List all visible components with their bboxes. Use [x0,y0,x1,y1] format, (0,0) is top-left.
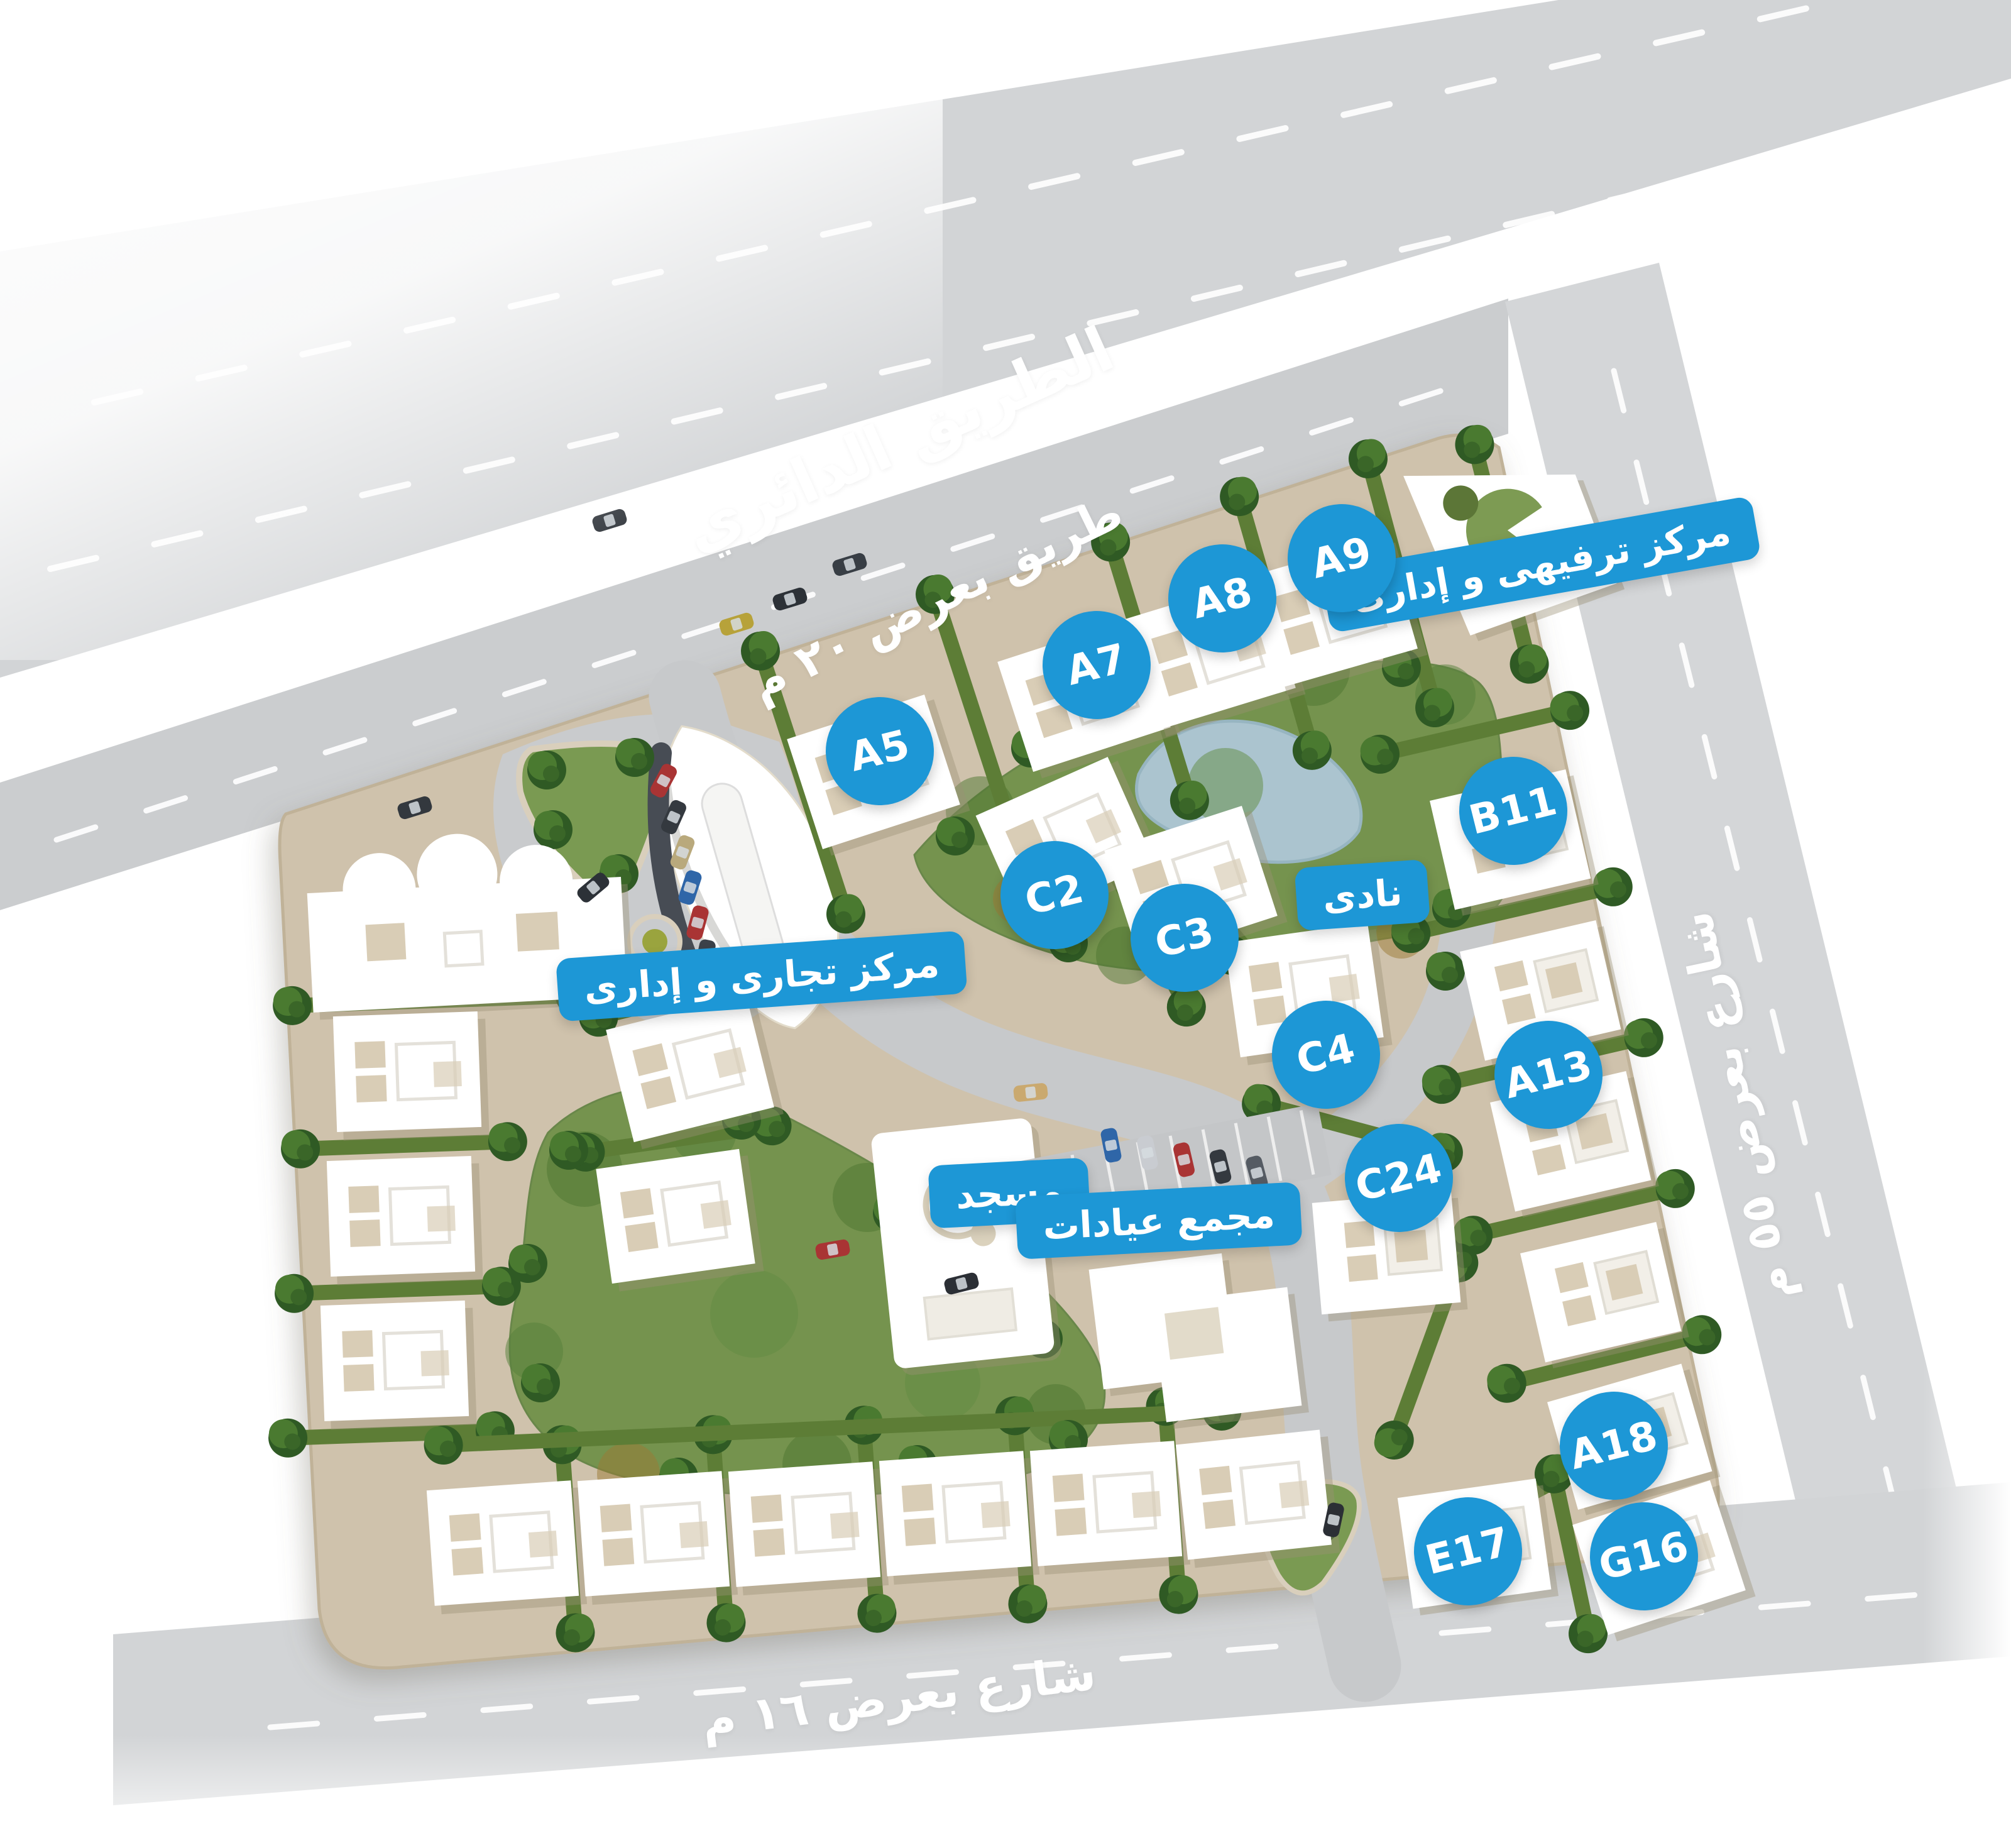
label-club: نادى [1295,859,1431,931]
master-plan-page: الطريق الدائري طريق بعرض ٢٠ م شارع بعرض … [0,0,2011,1848]
fade-bottom [0,1735,2011,1848]
fade-right [1923,126,2011,1697]
fade-top-left [0,0,943,660]
